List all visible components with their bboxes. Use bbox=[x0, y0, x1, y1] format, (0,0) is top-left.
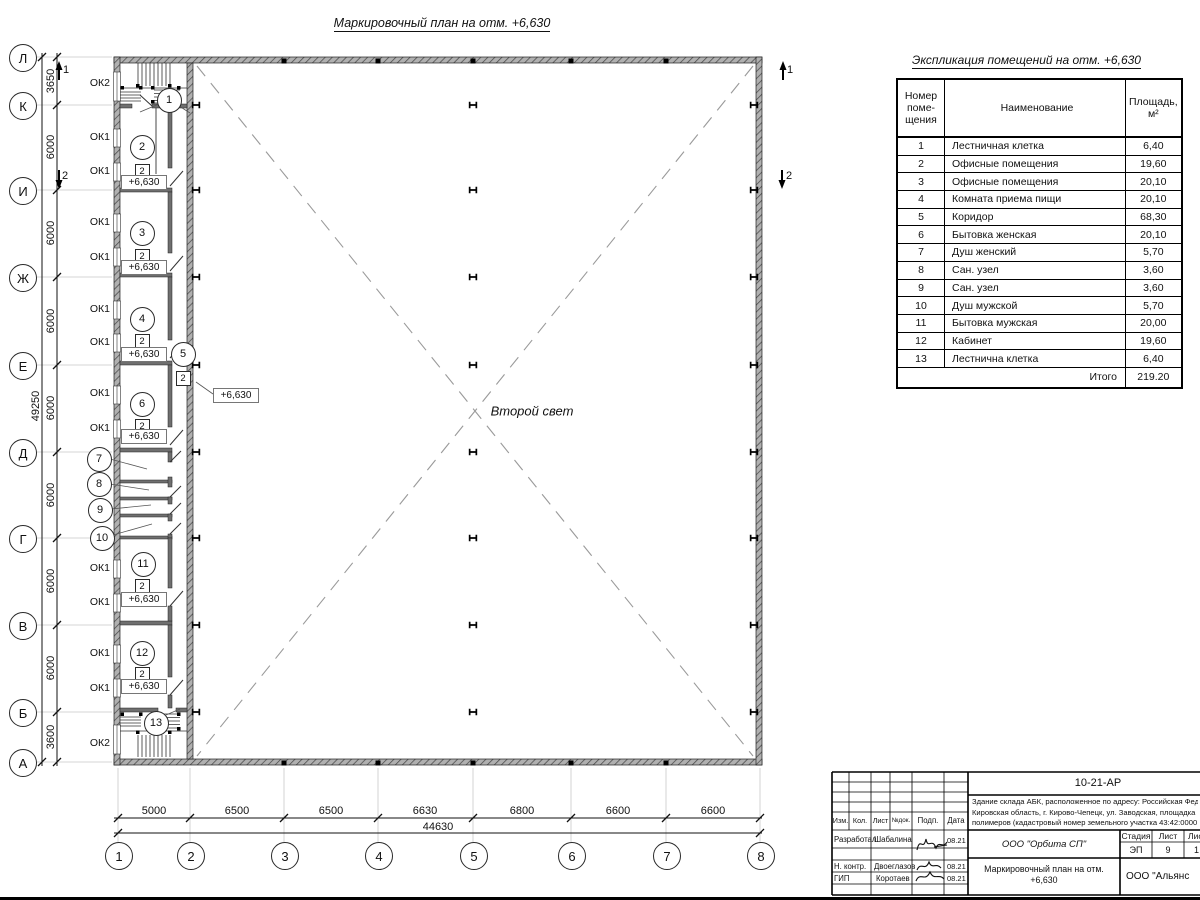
tb-role: Н. контр. bbox=[834, 862, 866, 871]
table-row: 13Лестнична клетка6,40 bbox=[897, 350, 1182, 368]
section-mark-1: 1 bbox=[787, 64, 793, 76]
room-mark-5: 5 bbox=[171, 342, 196, 367]
tb-sheet-title: Маркировочный план на отм. +6,630 bbox=[968, 864, 1120, 886]
tb-stage-h: Стадия bbox=[1120, 831, 1152, 841]
room-mark-13: 13 bbox=[144, 711, 169, 736]
axis-col-8: 8 bbox=[747, 842, 775, 870]
window-label: ОК1 bbox=[76, 131, 110, 143]
section-mark-2: 2 bbox=[786, 170, 792, 182]
axis-col-6: 6 bbox=[558, 842, 586, 870]
tb-name: Двоеглазов bbox=[874, 862, 915, 871]
axis-col-3: 3 bbox=[271, 842, 299, 870]
tb-col-podp: Подп. bbox=[912, 816, 944, 825]
v-dim: 6000 bbox=[45, 221, 57, 245]
tb-col-list: Лист bbox=[871, 816, 890, 825]
column-symbols bbox=[192, 102, 758, 715]
elevation-label: +6,630 bbox=[121, 679, 167, 694]
schedule-total-label: Итого bbox=[897, 367, 1126, 388]
axis-row-E: Е bbox=[9, 352, 37, 380]
type-badge: 2 bbox=[176, 371, 191, 386]
v-dim-total: 49250 bbox=[30, 391, 42, 422]
tb-role: Разработал bbox=[834, 835, 876, 844]
table-row: 11Бытовка мужская20,00 bbox=[897, 314, 1182, 332]
v-dim: 3600 bbox=[45, 725, 57, 749]
room-mark-1: 1 bbox=[157, 88, 182, 113]
table-row: 7Душ женский5,70 bbox=[897, 244, 1182, 262]
section-mark-2: 2 bbox=[62, 170, 68, 182]
elevation-label: +6,630 bbox=[121, 429, 167, 444]
schedule-header-area: Площадь, м² bbox=[1126, 79, 1182, 137]
elevation-label: +6,630 bbox=[121, 347, 167, 362]
axis-row-I: И bbox=[9, 177, 37, 205]
axis-row-B: Б bbox=[9, 699, 37, 727]
window-label: ОК2 bbox=[76, 77, 110, 89]
room-mark-10: 10 bbox=[90, 526, 115, 551]
axis-row-Zh: Ж bbox=[9, 264, 37, 292]
v-dim: 6000 bbox=[45, 569, 57, 593]
tb-date: 08.21 bbox=[947, 862, 966, 871]
room-mark-12: 12 bbox=[130, 641, 155, 666]
room-mark-3: 3 bbox=[130, 221, 155, 246]
room-schedule-table: Номер поме- щения Наименование Площадь, … bbox=[896, 78, 1183, 389]
window-label: ОК1 bbox=[76, 596, 110, 608]
table-total-row: Итого 219.20 bbox=[897, 367, 1182, 388]
schedule-header-name: Наименование bbox=[945, 79, 1126, 137]
section-mark-1: 1 bbox=[63, 64, 69, 76]
table-row: 8Сан. узел3,60 bbox=[897, 261, 1182, 279]
h-dim-total: 44630 bbox=[423, 821, 454, 833]
elevation-label-corridor: +6,630 bbox=[213, 388, 259, 403]
tb-name: Коротаев bbox=[876, 874, 910, 883]
window-label: ОК1 bbox=[76, 251, 110, 263]
table-row: 12Кабинет19,60 bbox=[897, 332, 1182, 350]
room-mark-9: 9 bbox=[88, 498, 113, 523]
table-row: 5Коридор68,30 bbox=[897, 208, 1182, 226]
plan-title: Маркировочный план на отм. +6,630 bbox=[292, 16, 592, 30]
tb-stage-v: ЭП bbox=[1120, 845, 1152, 855]
table-row: 1Лестничная клетка6,40 bbox=[897, 137, 1182, 155]
table-row: 3Офисные помещения20,10 bbox=[897, 173, 1182, 191]
h-dim: 5000 bbox=[142, 805, 166, 817]
tb-listov-h: Листов bbox=[1188, 831, 1200, 841]
schedule-header-number: Номер поме- щения bbox=[897, 79, 945, 137]
window-label: ОК1 bbox=[76, 303, 110, 315]
axis-col-2: 2 bbox=[177, 842, 205, 870]
v-dim: 6000 bbox=[45, 483, 57, 507]
tb-list-h: Лист bbox=[1152, 831, 1184, 841]
tb-col-kol: Кол. bbox=[849, 816, 871, 825]
table-row: 9Сан. узел3,60 bbox=[897, 279, 1182, 297]
tb-org2: ООО "Альянс bbox=[1126, 871, 1189, 882]
doc-number: 10-21-АР bbox=[968, 777, 1200, 789]
tb-role: ГИП bbox=[834, 874, 849, 883]
axis-col-5: 5 bbox=[460, 842, 488, 870]
window-label: ОК1 bbox=[76, 387, 110, 399]
axis-row-V: В bbox=[9, 612, 37, 640]
window-label: ОК1 bbox=[76, 647, 110, 659]
tb-list-v: 9 bbox=[1152, 845, 1184, 855]
v-dim: 6000 bbox=[45, 309, 57, 333]
h-dim: 6500 bbox=[225, 805, 249, 817]
h-dim: 6500 bbox=[319, 805, 343, 817]
axis-row-K: К bbox=[9, 92, 37, 120]
schedule-total-value: 219.20 bbox=[1126, 367, 1182, 388]
tb-col-ndok: №док. bbox=[890, 817, 912, 824]
drawing-sheet: { "plan": { "title": "Маркировочный план… bbox=[0, 0, 1200, 900]
axis-row-A: А bbox=[9, 749, 37, 777]
tb-date: 08.21 bbox=[947, 874, 966, 883]
second-light-note: Второй свет bbox=[491, 404, 574, 419]
window-label: ОК1 bbox=[76, 336, 110, 348]
window-label: ОК2 bbox=[76, 737, 110, 749]
axis-col-4: 4 bbox=[365, 842, 393, 870]
tb-name: Шабалина bbox=[874, 835, 912, 844]
table-row: 6Бытовка женская20,10 bbox=[897, 226, 1182, 244]
room-mark-8: 8 bbox=[87, 472, 112, 497]
tb-date: 08.21 bbox=[947, 836, 966, 845]
v-dim: 6000 bbox=[45, 135, 57, 159]
h-dim: 6800 bbox=[510, 805, 534, 817]
room-mark-11: 11 bbox=[131, 552, 156, 577]
tb-col-izm: Изм. bbox=[832, 816, 849, 825]
h-dim: 6600 bbox=[701, 805, 725, 817]
v-dim: 3650 bbox=[45, 69, 57, 93]
room-mark-6: 6 bbox=[130, 392, 155, 417]
axis-row-G: Г bbox=[9, 525, 37, 553]
h-dim: 6600 bbox=[606, 805, 630, 817]
table-row: 4Комната приема пищи20,10 bbox=[897, 191, 1182, 209]
elevation-label: +6,630 bbox=[121, 175, 167, 190]
room-mark-4: 4 bbox=[130, 307, 155, 332]
axis-col-1: 1 bbox=[105, 842, 133, 870]
schedule-title: Экспликация помещений на отм. +6,630 bbox=[896, 53, 1157, 67]
window-label: ОК1 bbox=[76, 682, 110, 694]
tb-col-data: Дата bbox=[944, 816, 968, 825]
axis-row-L: Л bbox=[9, 44, 37, 72]
tb-org: ООО "Орбита СП" bbox=[968, 839, 1120, 850]
room-mark-7: 7 bbox=[87, 447, 112, 472]
axis-col-7: 7 bbox=[653, 842, 681, 870]
project-address: Здание склада АБК, расположенное по адре… bbox=[972, 797, 1198, 829]
elevation-label: +6,630 bbox=[121, 260, 167, 275]
tb-listov-v: 1 bbox=[1194, 845, 1199, 855]
window-label: ОК1 bbox=[76, 216, 110, 228]
v-dim: 6000 bbox=[45, 396, 57, 420]
window-label: ОК1 bbox=[76, 562, 110, 574]
h-dim: 6630 bbox=[413, 805, 437, 817]
table-row: 2Офисные помещения19,60 bbox=[897, 155, 1182, 173]
window-label: ОК1 bbox=[76, 165, 110, 177]
v-dim: 6000 bbox=[45, 656, 57, 680]
window-label: ОК1 bbox=[76, 422, 110, 434]
elevation-label: +6,630 bbox=[121, 592, 167, 607]
table-row: 10Душ мужской5,70 bbox=[897, 297, 1182, 315]
room-mark-2: 2 bbox=[130, 135, 155, 160]
axis-row-D: Д bbox=[9, 439, 37, 467]
